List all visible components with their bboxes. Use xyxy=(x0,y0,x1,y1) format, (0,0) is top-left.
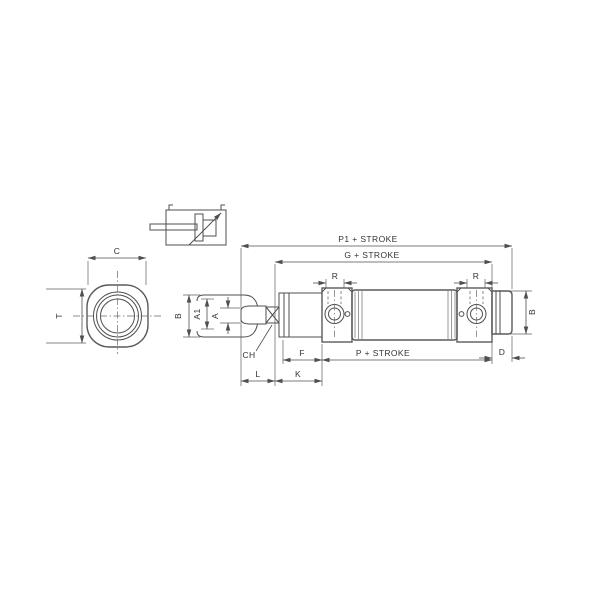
dim-r-right: R xyxy=(454,271,498,288)
cylinder-tube xyxy=(352,290,457,340)
cylinder-schematic-symbol xyxy=(150,205,226,245)
dim-label-f: F xyxy=(299,348,305,358)
dim-d: D xyxy=(479,336,525,362)
dim-k: K xyxy=(275,369,322,381)
dim-label-p-stroke: P + STROKE xyxy=(356,348,410,358)
symbol-body xyxy=(166,210,226,245)
dim-label-k: K xyxy=(295,369,301,379)
rod-end-envelope-top xyxy=(197,295,258,306)
wrench-flats-box xyxy=(266,307,279,323)
technical-drawing-page: C T xyxy=(0,0,600,600)
dim-l: L xyxy=(241,369,275,381)
dim-label-l: L xyxy=(255,369,260,379)
symbol-cushion-box xyxy=(203,220,216,236)
rear-cushion-screw xyxy=(459,312,464,317)
dim-f: F xyxy=(283,340,322,386)
front-head xyxy=(322,288,352,342)
dim-label-p1-stroke: P1 + STROKE xyxy=(338,234,397,244)
dim-label-r-right: R xyxy=(473,271,480,281)
rod-end-envelope-bottom xyxy=(197,324,258,337)
dim-label-b-rear: B xyxy=(527,309,537,315)
dim-label-a: A xyxy=(210,313,220,319)
symbol-rod xyxy=(150,224,197,230)
dim-c: C xyxy=(88,246,146,285)
symbol-port-tick-right xyxy=(221,205,225,210)
front-view: C T xyxy=(46,246,162,354)
side-view: B A1 A CH P1 + STROKE xyxy=(173,234,537,386)
dim-g-stroke: G + STROKE xyxy=(275,250,492,386)
front-gland xyxy=(279,293,322,337)
rear-cap xyxy=(492,291,512,334)
dim-ch: CH xyxy=(242,325,272,360)
front-cushion-screw xyxy=(345,312,350,317)
dim-r-left: R xyxy=(313,271,357,288)
dim-label-b-front: B xyxy=(173,313,183,319)
symbol-piston xyxy=(195,214,203,241)
dim-label-g-stroke: G + STROKE xyxy=(344,250,399,260)
dim-label-ch: CH xyxy=(242,350,255,360)
dim-label-a1: A1 xyxy=(192,308,202,319)
dim-p-stroke: P + STROKE xyxy=(322,348,492,360)
symbol-port-tick-left xyxy=(169,205,173,210)
rear-head xyxy=(457,288,492,342)
dim-label-t: T xyxy=(54,313,64,319)
dim-a: A xyxy=(210,297,240,334)
cylinder-dimensional-drawing: C T xyxy=(0,0,600,600)
piston-rod xyxy=(241,306,266,324)
dim-label-c: C xyxy=(114,246,121,256)
dim-label-d: D xyxy=(499,347,506,357)
dim-label-r-left: R xyxy=(332,271,339,281)
